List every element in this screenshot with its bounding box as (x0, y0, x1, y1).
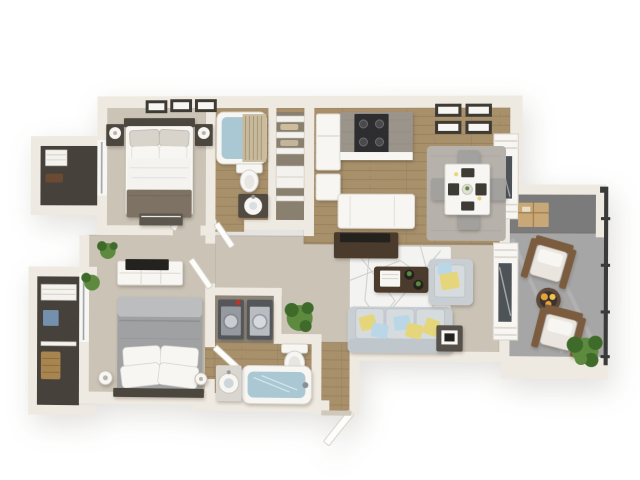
burner (375, 138, 383, 146)
tv-dresser-2 (118, 259, 183, 285)
window-master (97, 140, 107, 196)
pedestal-sink (216, 365, 242, 401)
washer-knob (235, 300, 240, 305)
wall-segment (205, 236, 215, 244)
coffee-table (374, 266, 429, 292)
throw-pillow (439, 272, 460, 291)
wall-segment (268, 108, 276, 222)
wall-segment (244, 220, 312, 230)
tv-console (334, 232, 398, 258)
placemat (475, 183, 486, 195)
closet-item (45, 174, 63, 183)
dining-table (445, 164, 490, 215)
entry-threshold (321, 410, 351, 415)
headboard (113, 388, 204, 398)
linen-shelves (276, 112, 304, 220)
bathtub-2 (242, 365, 312, 404)
kitchen-counter (340, 112, 413, 160)
side-table (436, 325, 462, 351)
vanity-sink-1 (238, 194, 268, 218)
towels (280, 124, 298, 130)
towels (280, 140, 298, 146)
television (125, 259, 168, 270)
nightstand-left (106, 124, 124, 146)
sliding-door-blinds-living (493, 243, 518, 340)
dryer (247, 300, 273, 340)
wall-segment (97, 225, 173, 235)
wall-segment (31, 136, 107, 146)
nightstand-right (195, 124, 213, 146)
burner (376, 120, 384, 128)
floor-plan-render: 3D floor plan rendering of a two-bedroom… (4, 0, 640, 480)
wall-segment (205, 287, 282, 296)
bathtub-1 (217, 112, 267, 164)
stove (354, 114, 388, 154)
wall-segment (31, 205, 107, 215)
refrigerator (316, 114, 340, 170)
wall-art-frames (146, 99, 217, 113)
wall-segment (349, 351, 359, 415)
pantry-cabinet (316, 174, 340, 200)
bedroom1-dresser (139, 213, 182, 225)
double-bed-master (124, 118, 195, 218)
television (340, 233, 390, 242)
kitchen-island (338, 194, 415, 228)
double-bed-2 (113, 297, 204, 398)
wall-segment (31, 136, 40, 215)
screenshot-canvas: 3D floor plan rendering of a two-bedroom… (0, 0, 640, 480)
wall-segment (274, 288, 282, 343)
storage-box-blue (43, 310, 59, 326)
wall-segment (28, 266, 37, 414)
wall-segment (304, 106, 314, 236)
placemat (461, 168, 474, 177)
washer (218, 299, 244, 339)
placemat (448, 183, 459, 195)
placemat (461, 201, 474, 210)
burner (359, 120, 367, 128)
storage-box (518, 203, 549, 227)
throw-pillow (371, 322, 389, 339)
floor-plan-scene: 3D floor plan rendering of a two-bedroom… (4, 0, 640, 480)
wall-segment (205, 283, 215, 347)
burner (359, 138, 367, 146)
armchair (428, 259, 473, 306)
wall-segment (28, 405, 96, 416)
